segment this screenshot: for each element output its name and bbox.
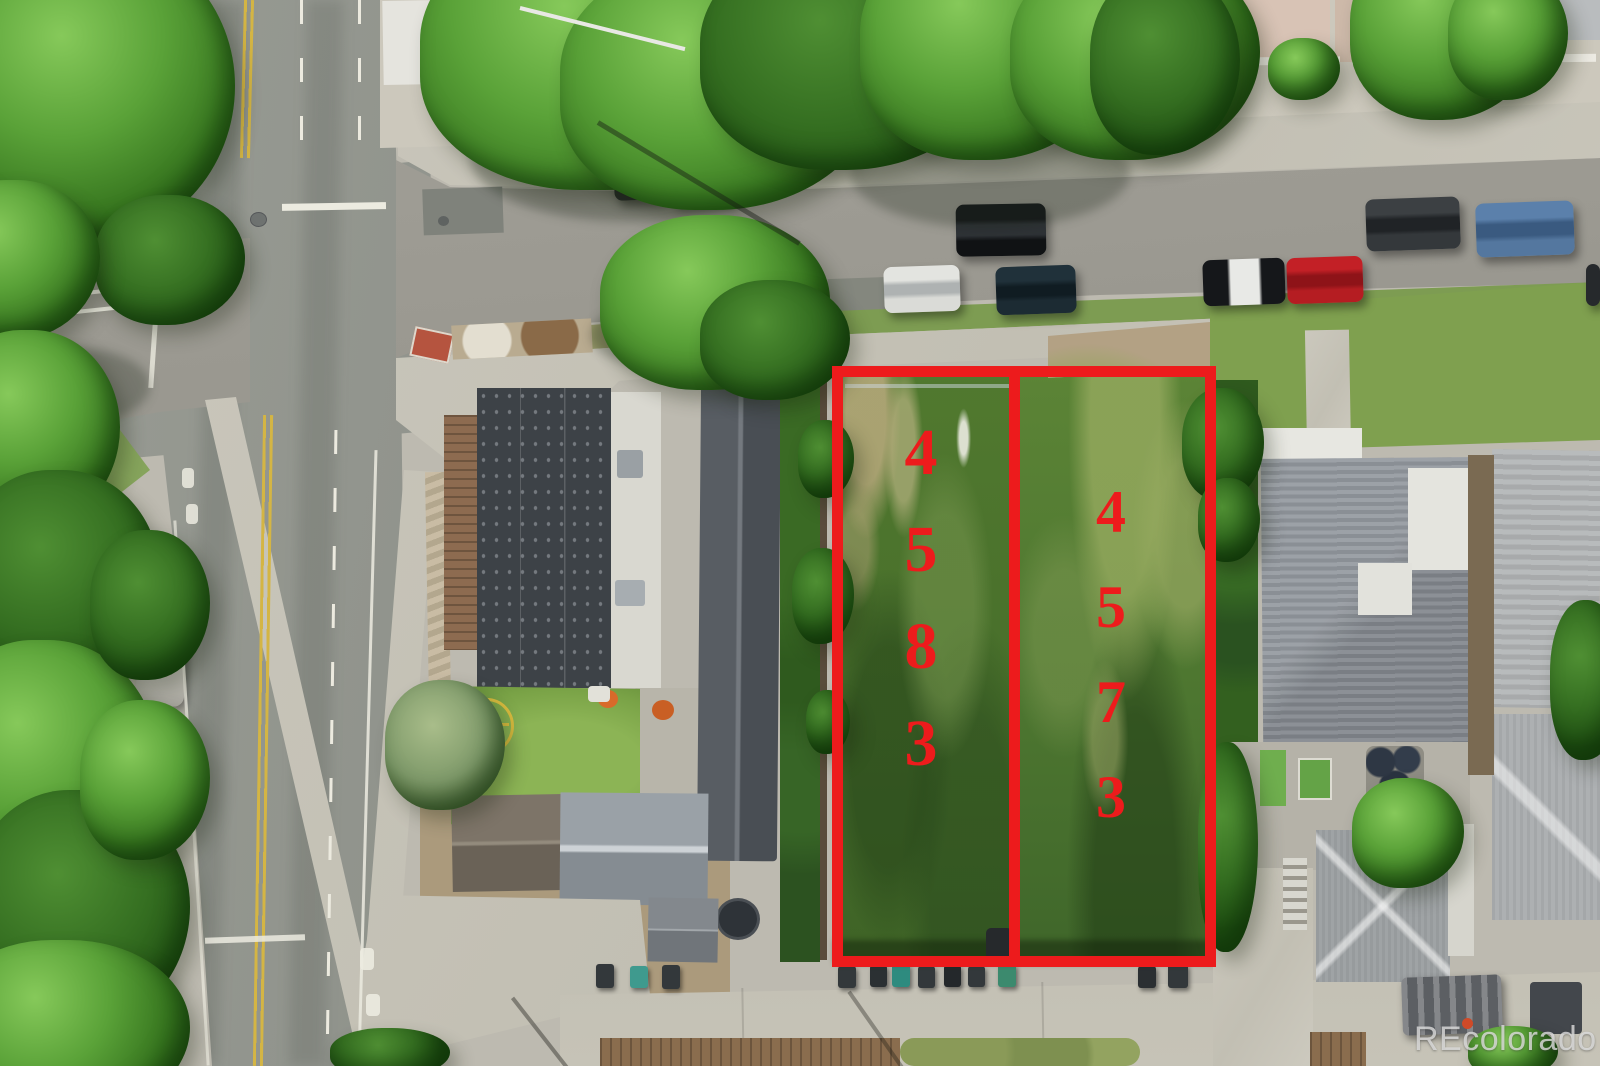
manhole-cover [250, 212, 267, 227]
neighbor-long-roof [697, 383, 781, 862]
white-flat-roof [611, 392, 661, 688]
solar-flat-roof [477, 388, 611, 688]
bike-lane-symbol [360, 948, 374, 970]
patio-table [588, 686, 610, 702]
rooftop-ac-unit [617, 450, 643, 478]
lot-address-digit: 4 [876, 404, 966, 501]
parked-car [1586, 264, 1600, 306]
bike-lane-symbol [366, 994, 380, 1016]
trash-bin [838, 966, 856, 988]
house-roof-gray [560, 792, 709, 905]
parked-car [883, 265, 961, 314]
modern-house-white-patch [1358, 563, 1412, 615]
bike-lane-symbol [186, 504, 198, 524]
garage-roof [647, 897, 718, 962]
lot-address-4573: 4 5 7 3 [1066, 465, 1156, 845]
lot-divider-line [1009, 373, 1020, 959]
trash-bin [998, 964, 1016, 987]
wood-crates [1310, 1032, 1366, 1066]
lot-address-digit: 3 [1066, 750, 1156, 845]
parked-car [1475, 200, 1575, 257]
parked-car [1286, 256, 1364, 305]
patio-chair-orange [652, 700, 674, 720]
rooftop-ac-unit [615, 580, 645, 606]
turf-patch [1260, 750, 1286, 806]
wood-fence-bottom [600, 1038, 900, 1066]
turf-patch [1298, 758, 1332, 800]
lot-boundary-outline: 4 5 8 3 4 5 7 3 [832, 366, 1216, 967]
trash-bin [630, 966, 648, 988]
trash-bin [892, 964, 910, 987]
lot-address-digit: 4 [1066, 465, 1156, 560]
lot-address-digit: 5 [1066, 560, 1156, 655]
lot-address-digit: 7 [1066, 655, 1156, 750]
side-dirt-strip [1468, 455, 1494, 775]
lane-line-white [300, 0, 303, 152]
house-roof-brown [451, 794, 565, 892]
bike-lane-symbol [182, 468, 194, 488]
trash-bin [1138, 966, 1156, 988]
tree-canopy [80, 700, 210, 860]
asphalt-patch [422, 187, 504, 236]
staircase [1283, 858, 1307, 930]
trash-bin [944, 965, 961, 987]
parked-car [1365, 196, 1461, 251]
alley-weeds [900, 1038, 1140, 1066]
lot-address-4583: 4 5 8 3 [876, 404, 966, 792]
trash-bin [968, 966, 985, 987]
trash-bin [596, 964, 614, 988]
parked-car [995, 265, 1077, 316]
lane-line-white [358, 0, 361, 152]
trash-bin [1168, 964, 1188, 988]
lot-address-digit: 3 [876, 695, 966, 792]
tree-canopy [1550, 600, 1600, 760]
trash-bin [918, 966, 935, 988]
modern-house-white-wing [1408, 468, 1470, 570]
manhole-cover [438, 216, 449, 226]
wood-deck [444, 415, 480, 650]
parked-car [1202, 258, 1286, 307]
lot-address-digit: 8 [876, 598, 966, 695]
aerial-photo: 4 5 8 3 4 5 7 3 REcolorado [0, 0, 1600, 1066]
hot-tub [716, 898, 760, 940]
tree-canopy [700, 280, 850, 400]
trash-bin [662, 965, 680, 989]
watermark: REcolorado [1414, 1020, 1597, 1059]
lot-address-digit: 5 [876, 501, 966, 598]
trash-bin [870, 965, 887, 987]
